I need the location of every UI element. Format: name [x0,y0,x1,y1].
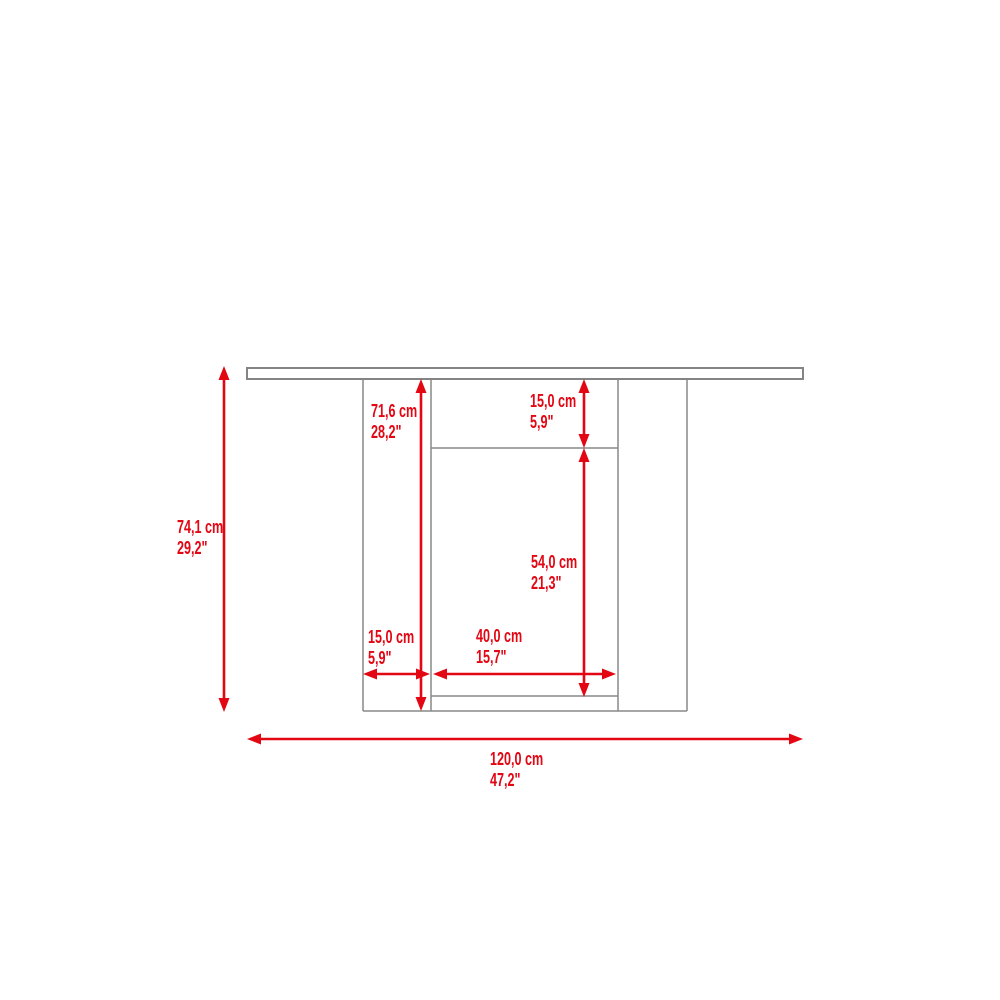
label-center-opening-height: 54,0 cm 21,3" [531,552,577,594]
label-top-opening-height: 15,0 cm 5,9" [530,391,576,433]
overall-width-cm: 120,0 cm [490,749,543,770]
dimension-arrows [219,366,804,745]
center-opening-width-cm: 40,0 cm [476,626,522,647]
label-overall-height: 74,1 cm 29,2" [177,517,223,559]
tabletop-outline [247,368,803,379]
center-opening-height-in: 21,3" [531,573,577,594]
label-interior-height: 71,6 cm 28,2" [371,401,417,443]
interior-height-in: 28,2" [371,422,417,443]
label-center-opening-width: 40,0 cm 15,7" [476,626,522,668]
overall-width-in: 47,2" [490,770,543,791]
center-opening-height-cm: 54,0 cm [531,552,577,573]
top-opening-height-in: 5,9" [530,412,576,433]
label-side-panel-width: 15,0 cm 5,9" [368,627,414,669]
center-opening-width-in: 15,7" [476,647,522,668]
side-panel-width-cm: 15,0 cm [368,627,414,648]
interior-height-cm: 71,6 cm [371,401,417,422]
overall-height-in: 29,2" [177,538,223,559]
top-opening-height-cm: 15,0 cm [530,391,576,412]
dim-arrow-side-panel-width [363,669,430,680]
dim-arrow-center-opening-width [433,669,616,680]
label-overall-width: 120,0 cm 47,2" [490,749,543,791]
side-panel-width-in: 5,9" [368,648,414,669]
dim-arrow-overall-width [247,734,803,745]
furniture-dimension-diagram [0,0,1000,1000]
dim-arrow-center-opening-height [579,448,590,697]
dim-arrow-top-opening-height [579,379,590,448]
furniture-outline [247,368,803,711]
dimension-diagram-page: 74,1 cm 29,2" 71,6 cm 28,2" 15,0 cm 5,9"… [0,0,1000,1000]
overall-height-cm: 74,1 cm [177,517,223,538]
